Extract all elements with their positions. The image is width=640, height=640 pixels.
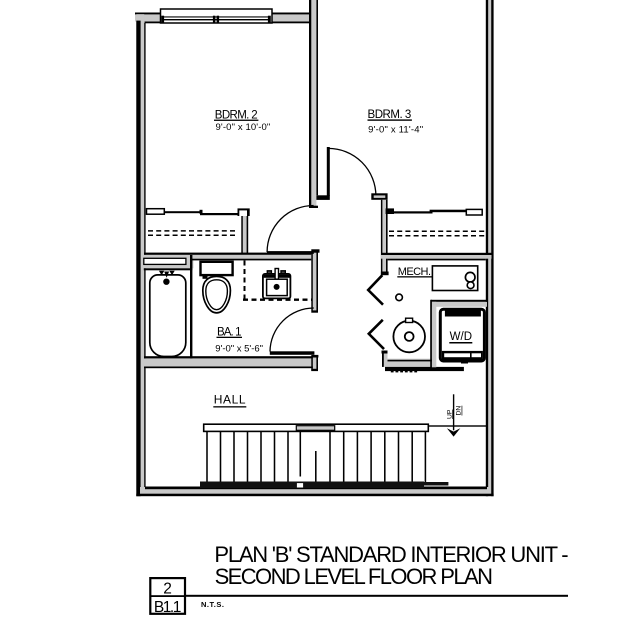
svg-text:9'-0" x 5'-6": 9'-0" x 5'-6" [215, 343, 263, 354]
svg-text:UP: UP [446, 409, 453, 419]
svg-text:HALL: HALL [214, 393, 246, 407]
svg-text:SECOND LEVEL FLOOR PLAN: SECOND LEVEL FLOOR PLAN [215, 564, 493, 589]
svg-text:DN: DN [456, 406, 463, 416]
svg-text:B1.1: B1.1 [154, 599, 182, 616]
svg-text:N.T.S.: N.T.S. [201, 600, 224, 609]
svg-text:2: 2 [163, 580, 172, 597]
svg-text:9'-0" x 11'-4": 9'-0" x 11'-4" [368, 125, 423, 136]
svg-text:9'-0" x 10'-0": 9'-0" x 10'-0" [216, 122, 271, 133]
svg-text:BA. 1: BA. 1 [217, 326, 242, 338]
svg-text:W/D: W/D [450, 331, 473, 343]
svg-text:BDRM. 3: BDRM. 3 [368, 109, 412, 121]
